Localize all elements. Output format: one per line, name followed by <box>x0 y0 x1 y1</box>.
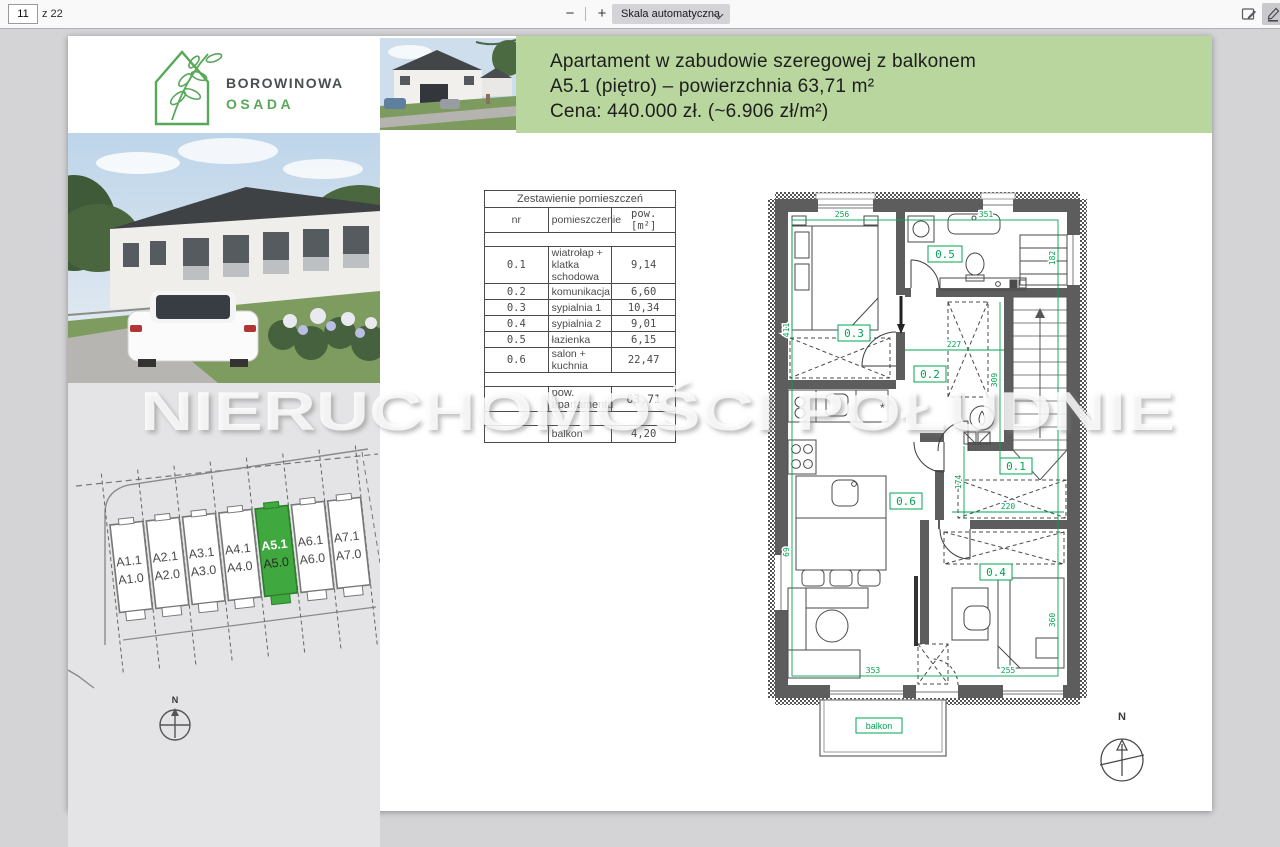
room-label-03: 0.3 <box>844 327 864 340</box>
svg-text:A6.0: A6.0 <box>299 551 326 568</box>
svg-text:227: 227 <box>947 340 962 349</box>
balcony-label: balkon <box>866 721 893 731</box>
table-row: 0.1 wiatrołap + klatka schodowa 9,14 <box>485 247 676 284</box>
svg-text:351: 351 <box>979 210 994 219</box>
staircase <box>1013 297 1067 480</box>
svg-text:A4.0: A4.0 <box>226 559 253 576</box>
room-label-05: 0.5 <box>935 248 955 261</box>
wardrobe-room04 <box>944 532 1064 564</box>
north-arrow-plan: N <box>1088 704 1168 804</box>
svg-text:411: 411 <box>782 323 791 338</box>
logo-line1: BOROWINOWA <box>226 75 344 91</box>
svg-text:256: 256 <box>835 210 850 219</box>
wardrobe-room03 <box>790 338 890 378</box>
ink-draw-button[interactable] <box>1262 3 1280 25</box>
svg-text:A1.0: A1.0 <box>117 571 144 588</box>
table-row: 0.3 sypialnia 1 10,34 <box>485 300 676 316</box>
north-label-site: N <box>172 695 179 705</box>
zoom-scale-label: Skala automatyczna <box>621 8 720 20</box>
pdf-page: BOROWINOWA OSADA Apartament w zabudowie … <box>68 36 1212 811</box>
listing-header: Apartament w zabudowie szeregowej z balk… <box>516 36 1212 133</box>
svg-text:A4.1: A4.1 <box>224 541 251 558</box>
svg-text:174: 174 <box>954 475 963 490</box>
svg-text:A1.1: A1.1 <box>115 553 142 570</box>
svg-text:A2.0: A2.0 <box>154 567 181 584</box>
sofa-living <box>788 588 868 678</box>
pdf-toolbar: z 22 − + Skala automatyczna <box>0 0 1280 29</box>
svg-text:353: 353 <box>866 666 881 675</box>
pdf-viewer: { "toolbar": { "page_input": "11", "page… <box>0 0 1280 811</box>
svg-text:A7.0: A7.0 <box>335 547 362 564</box>
svg-text:*: * <box>880 401 885 415</box>
svg-text:A5.1: A5.1 <box>261 537 289 554</box>
logo-block: BOROWINOWA OSADA <box>68 36 380 133</box>
freetext-annotation-icon <box>1241 6 1257 22</box>
zoom-in-button[interactable]: + <box>590 2 614 26</box>
logo-line2: OSADA <box>226 96 294 112</box>
zoom-out-button[interactable]: − <box>558 2 582 26</box>
listing-price: Cena: 440.000 zł. (~6.906 zł/m²) <box>550 99 1212 124</box>
freetext-annotation-button[interactable] <box>1238 3 1260 25</box>
bed-room03 <box>792 216 878 330</box>
logo-house-leaf-icon <box>156 52 223 124</box>
borowinowa-osada-logo: BOROWINOWA OSADA <box>68 36 380 133</box>
room-label-04: 0.4 <box>986 566 1006 579</box>
page-count-label: z 22 <box>42 8 63 20</box>
room-label-02: 0.2 <box>920 368 940 381</box>
table-total-row: pow. apartamentu 63,71 <box>485 387 676 412</box>
floor-plan: * <box>768 180 1088 770</box>
svg-text:360: 360 <box>1048 613 1057 628</box>
listing-unit-area: A5.1 (piętro) – powierzchnia 63,71 m² <box>550 74 1212 99</box>
kitchen: * <box>788 390 888 586</box>
svg-text:A7.1: A7.1 <box>333 529 360 546</box>
svg-text:220: 220 <box>1001 502 1016 511</box>
balcony: balkon <box>820 700 946 756</box>
rooms-table: Zestawienie pomieszczeń nr pomieszczenie… <box>484 190 676 443</box>
svg-text:182: 182 <box>1048 251 1057 266</box>
table-row: 0.2 komunikacja 6,60 <box>485 284 676 300</box>
svg-text:255: 255 <box>1001 666 1016 675</box>
building-render-photo <box>68 133 380 383</box>
svg-text:69: 69 <box>782 547 791 557</box>
page-number-input[interactable] <box>8 4 38 24</box>
svg-text:A3.0: A3.0 <box>190 563 217 580</box>
toolbar-divider <box>585 7 586 21</box>
table-row: 0.5 łazienka 6,15 <box>485 332 676 348</box>
zoom-scale-select[interactable]: Skala automatyczna <box>612 4 730 24</box>
table-row: 0.6 salon + kuchnia 22,47 <box>485 348 676 373</box>
ink-draw-icon <box>1265 6 1280 22</box>
table-balcony-row: balkon 4,20 <box>485 426 676 443</box>
rooms-table-title: Zestawienie pomieszczeń <box>485 191 676 208</box>
svg-text:A3.1: A3.1 <box>188 545 215 562</box>
room-label-06: 0.6 <box>896 495 916 508</box>
svg-text:309: 309 <box>990 373 999 388</box>
svg-text:A6.1: A6.1 <box>297 533 324 550</box>
svg-text:A2.1: A2.1 <box>152 549 179 566</box>
corridor-wardrobe <box>948 302 988 397</box>
room-label-01: 0.1 <box>1006 460 1026 473</box>
site-plan: A1.1 A1.0 A2.1 A2.0 A3.1 A3.0 <box>68 383 380 847</box>
closet-room06 <box>918 644 948 684</box>
desk-room04 <box>952 588 990 640</box>
tv <box>914 576 918 646</box>
table-row: 0.4 sypialnia 2 9,01 <box>485 316 676 332</box>
building-thumb-photo <box>380 38 516 130</box>
listing-title: Apartament w zabudowie szeregowej z balk… <box>550 49 1212 74</box>
north-label-plan: N <box>1118 711 1126 723</box>
svg-text:A5.0: A5.0 <box>262 555 289 572</box>
